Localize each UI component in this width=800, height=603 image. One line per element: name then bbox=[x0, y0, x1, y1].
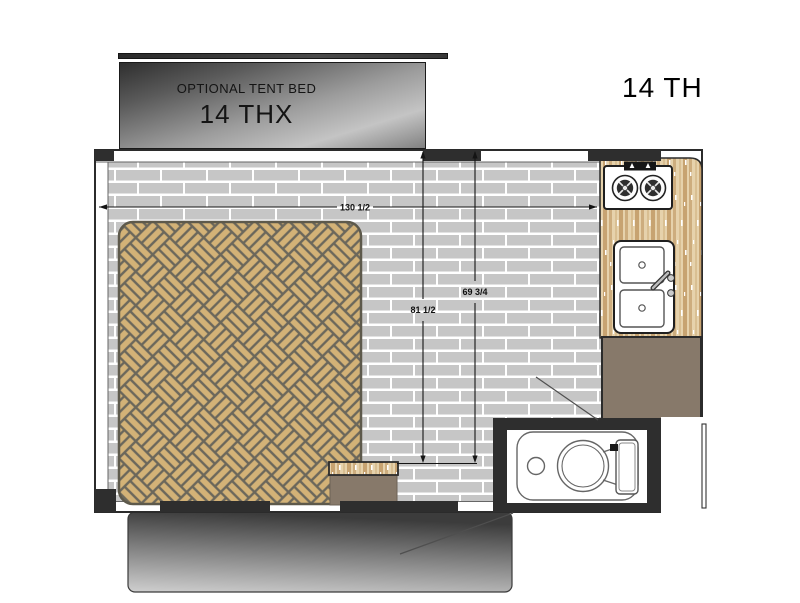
storage-step-icon bbox=[329, 462, 398, 505]
wall-segment-top-mid bbox=[423, 150, 481, 161]
dim-interior-right-label: 69 3/4 bbox=[462, 287, 487, 297]
tap-knob-icon bbox=[668, 290, 675, 297]
wall-segment-bottom-mid bbox=[340, 501, 458, 512]
kitchen-counter bbox=[600, 158, 702, 338]
door-opening bbox=[661, 417, 707, 513]
dim-overall-width-label: 130 1/2 bbox=[340, 203, 370, 213]
cabinet-block-icon bbox=[602, 337, 701, 420]
rear-bumper-step-icon bbox=[128, 512, 512, 592]
herringbone-mattress-icon bbox=[119, 222, 361, 504]
open-door-leaf bbox=[702, 424, 706, 508]
double-basin-sink-icon bbox=[614, 241, 674, 333]
wall-segment-bottom-left bbox=[160, 501, 270, 512]
burner-left-icon bbox=[613, 176, 638, 201]
floorplan-drawing: 130 1/2 bbox=[0, 0, 800, 603]
wall-segment-top-right bbox=[588, 150, 661, 161]
tap-knob-icon bbox=[668, 275, 675, 282]
cassette-toilet-icon bbox=[517, 432, 638, 500]
flush-button-icon bbox=[528, 458, 545, 475]
two-burner-stove-icon bbox=[604, 162, 672, 210]
wall-corner-bottom-left bbox=[95, 489, 116, 512]
floorplan-canvas: OPTIONAL TENT BED 14 THX 14 TH bbox=[0, 0, 800, 603]
dim-interior-left-label: 81 1/2 bbox=[410, 305, 435, 315]
wall-corner-top-left bbox=[95, 150, 114, 161]
toilet-vent-icon bbox=[610, 444, 618, 451]
burner-right-icon bbox=[641, 176, 666, 201]
